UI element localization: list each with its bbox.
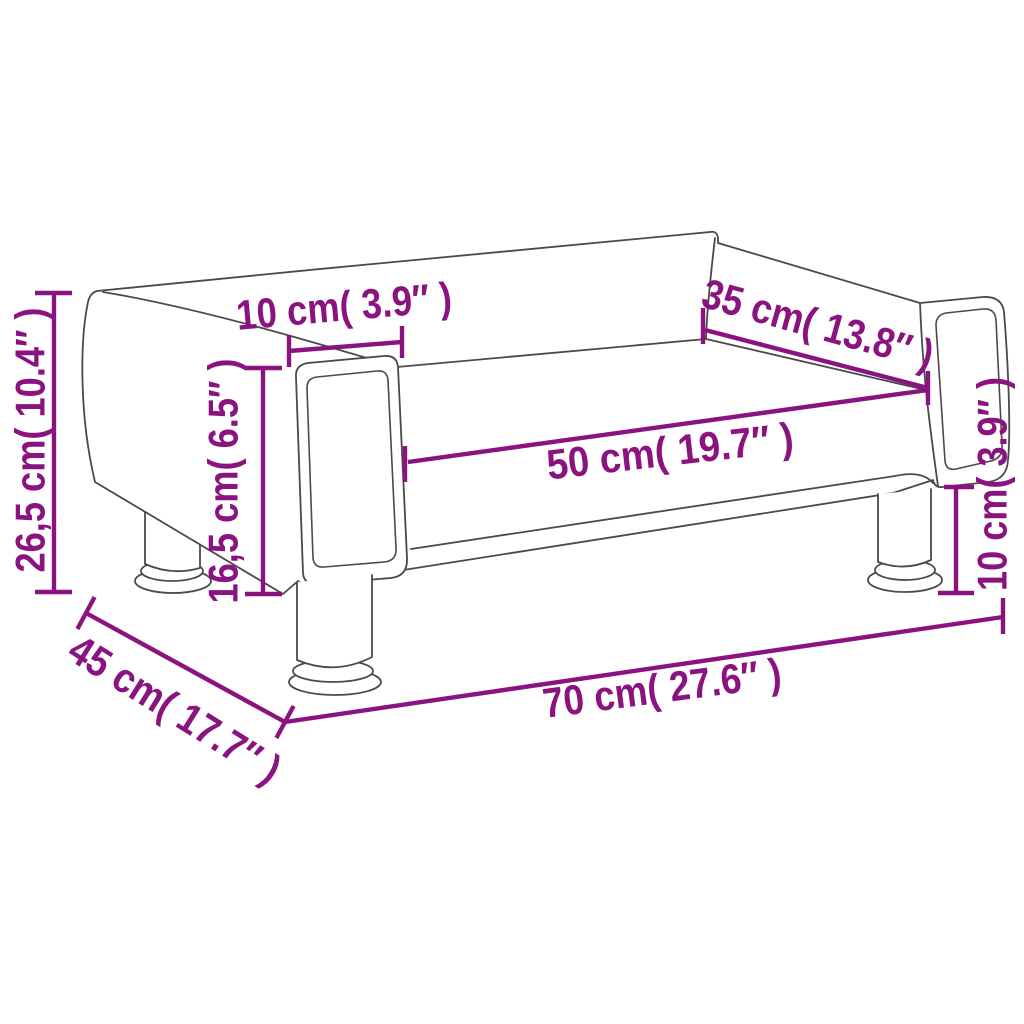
dim-leg-height-label: 10 cm( 3.9″ ) [969, 377, 1016, 591]
dim-depth-label: 45 cm( 17.7″ ) [60, 625, 289, 793]
sofa-leg-front-left [289, 575, 381, 695]
sofa-dimension-svg: 26,5 cm( 10.4″ ) 16,5 cm( 6.5″ ) 10 cm( … [0, 0, 1024, 1024]
dim-overall-width-label: 70 cm( 27.6″ ) [540, 649, 784, 727]
sofa-leg-front-right [868, 489, 942, 592]
dim-armrest-height-label: 16,5 cm( 6.5″ ) [200, 359, 247, 604]
product-dimension-image: 26,5 cm( 10.4″ ) 16,5 cm( 6.5″ ) 10 cm( … [0, 0, 1024, 1024]
dim-overall-height-label: 26,5 cm( 10.4″ ) [7, 308, 54, 573]
left-armrest [296, 356, 407, 584]
